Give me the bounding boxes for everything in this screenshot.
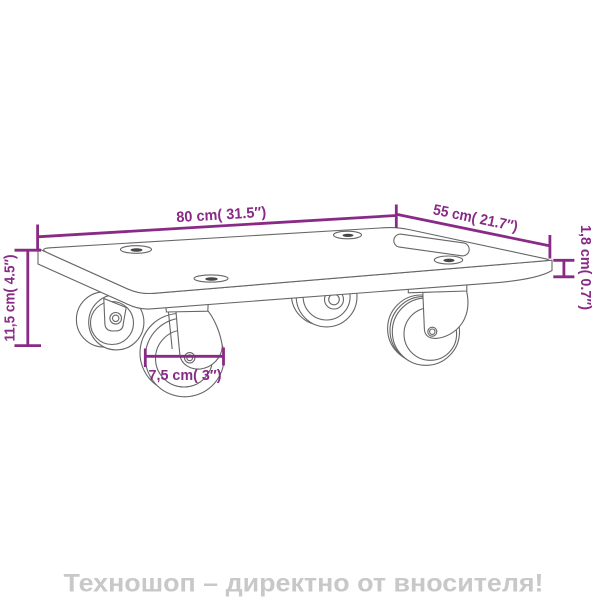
svg-text:7,5 cm( 3″): 7,5 cm( 3″) xyxy=(149,367,222,384)
svg-text:11,5 cm( 4.5″): 11,5 cm( 4.5″) xyxy=(2,255,19,342)
svg-text:1,8 cm( 0.7″): 1,8 cm( 0.7″) xyxy=(577,225,594,310)
svg-text:Техношоп – директно от вносите: Техношоп – директно от вносителя! xyxy=(64,570,544,598)
